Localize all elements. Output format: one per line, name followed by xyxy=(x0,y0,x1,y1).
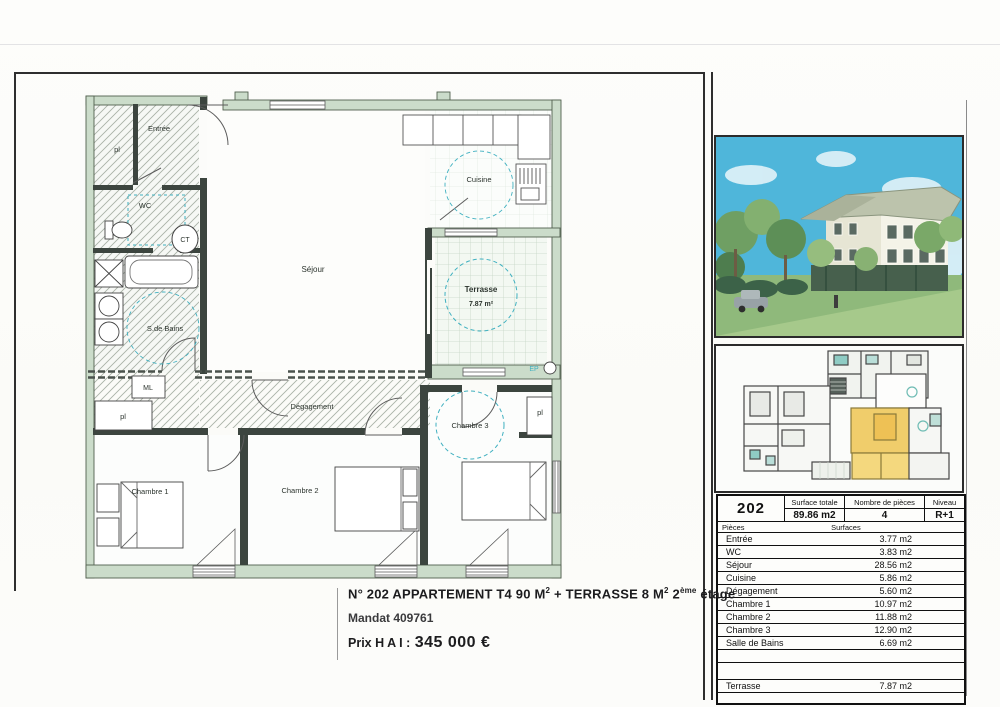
frame-top-border xyxy=(14,72,704,74)
text-block-left-rule xyxy=(337,588,338,660)
row-label: Chambre 3 xyxy=(718,624,846,636)
mandat-line: Mandat 409761 xyxy=(348,611,710,625)
row-label: Salle de Bains xyxy=(718,637,846,649)
label-terrasse: Terrasse xyxy=(465,285,498,294)
row-label xyxy=(718,693,846,703)
price-label: Prix H A I : xyxy=(348,636,410,650)
price-line: Prix H A I : 345 000 € xyxy=(348,634,710,652)
label-pl-entree: pl xyxy=(114,145,120,154)
row-label: Chambre 1 xyxy=(718,598,846,610)
col-surfaces: Surfaces xyxy=(831,523,861,532)
label-cuisine: Cuisine xyxy=(466,175,491,184)
label-sejour: Séjour xyxy=(301,265,324,274)
label-salle-de-bains: S.de Bains xyxy=(147,324,184,333)
surface-summary-table: 202 Surface totale Nombre de pièces Nive… xyxy=(716,494,966,705)
label-terrasse-area: 7.87 m² xyxy=(469,301,494,308)
row-label xyxy=(718,650,846,662)
key-plan-image xyxy=(716,346,962,491)
page-right-edge-line xyxy=(966,100,967,696)
label-pl-chambre3: pl xyxy=(537,408,543,417)
title-text: + TERRASSE 8 M xyxy=(550,586,664,601)
surface-totale-label: Surface totale xyxy=(784,496,844,509)
label-entree: Entrée xyxy=(148,124,170,133)
table-row: Chambre 110.97 m2 xyxy=(718,598,964,611)
row-label: WC xyxy=(718,546,846,558)
building-render-panel xyxy=(714,135,964,338)
row-label: Chambre 2 xyxy=(718,611,846,623)
table-header: 202 Surface totale Nombre de pièces Nive… xyxy=(718,496,964,522)
niveau-label: Niveau xyxy=(924,496,964,509)
floor-plan-drawing: pl Entrée WC CT S.de Bains ML pl Séjour … xyxy=(85,88,565,588)
title-sup: ème xyxy=(680,586,697,595)
row-value xyxy=(846,663,912,679)
row-value: 12.90 m2 xyxy=(846,624,912,636)
table-row-empty xyxy=(718,650,964,663)
table-row: Dégagement5.60 m2 xyxy=(718,585,964,598)
row-label xyxy=(718,663,846,679)
row-value: 10.97 m2 xyxy=(846,598,912,610)
row-value: 3.77 m2 xyxy=(846,533,912,545)
row-label: Entrée xyxy=(718,533,846,545)
row-value: 6.69 m2 xyxy=(846,637,912,649)
niveau-value: R+1 xyxy=(924,509,964,522)
frame-right-border-outer xyxy=(711,72,713,700)
label-ep: EP xyxy=(529,366,539,373)
table-row: Salle de Bains6.69 m2 xyxy=(718,637,964,650)
price-value: 345 000 € xyxy=(415,634,491,651)
nb-pieces-label: Nombre de pièces xyxy=(844,496,924,509)
key-plan-panel xyxy=(714,344,964,493)
listing-title: N° 202 APPARTEMENT T4 90 M2 + TERRASSE 8… xyxy=(348,586,710,601)
row-label: Cuisine xyxy=(718,572,846,584)
label-chambre1: Chambre 1 xyxy=(131,487,168,496)
label-chambre2: Chambre 2 xyxy=(281,486,318,495)
listing-text-block: N° 202 APPARTEMENT T4 90 M2 + TERRASSE 8… xyxy=(348,586,710,652)
title-text: N° 202 APPARTEMENT T4 90 M xyxy=(348,586,546,601)
label-wc: WC xyxy=(139,201,152,210)
table-row: WC3.83 m2 xyxy=(718,546,964,559)
nb-pieces-value: 4 xyxy=(844,509,924,522)
row-value: 3.83 m2 xyxy=(846,546,912,558)
label-chambre3: Chambre 3 xyxy=(451,421,488,430)
table-row-empty xyxy=(718,693,964,703)
row-value xyxy=(846,693,912,703)
frame-left-border xyxy=(14,72,16,591)
row-label: Séjour xyxy=(718,559,846,571)
table-row-empty xyxy=(718,663,964,680)
table-row: Chambre 211.88 m2 xyxy=(718,611,964,624)
scanned-listing-page: pl Entrée WC CT S.de Bains ML pl Séjour … xyxy=(0,0,1000,707)
col-pieces: Pièces xyxy=(722,523,745,532)
table-row: Entrée3.77 m2 xyxy=(718,533,964,546)
row-label: Terrasse xyxy=(718,680,846,692)
row-value: 5.86 m2 xyxy=(846,572,912,584)
bed-chambre2 xyxy=(335,467,419,531)
person-figure xyxy=(834,295,838,308)
row-value: 5.60 m2 xyxy=(846,585,912,597)
key-plan-units xyxy=(744,351,949,479)
label-ml: ML xyxy=(143,385,153,392)
row-value: 7.87 m2 xyxy=(846,680,912,692)
bed-chambre3 xyxy=(462,462,546,520)
label-pl-corridor: pl xyxy=(120,412,126,421)
label-degagement: Dégagement xyxy=(291,402,335,411)
table-row: Chambre 312.90 m2 xyxy=(718,624,964,637)
title-text: étage xyxy=(697,586,736,601)
surface-totale-value: 89.86 m2 xyxy=(784,509,844,522)
unit-number: 202 xyxy=(718,496,784,522)
table-row: Terrasse7.87 m2 xyxy=(718,680,964,693)
building-render-image xyxy=(716,137,962,336)
row-value: 11.88 m2 xyxy=(846,611,912,623)
row-label: Dégagement xyxy=(718,585,846,597)
label-ct: CT xyxy=(180,237,190,244)
row-value xyxy=(846,650,912,662)
title-text: 2 xyxy=(669,586,680,601)
table-row: Séjour28.56 m2 xyxy=(718,559,964,572)
row-value: 28.56 m2 xyxy=(846,559,912,571)
table-subheader: Pièces Surfaces xyxy=(718,522,964,533)
table-row: Cuisine5.86 m2 xyxy=(718,572,964,585)
scan-fold-line xyxy=(0,44,1000,45)
